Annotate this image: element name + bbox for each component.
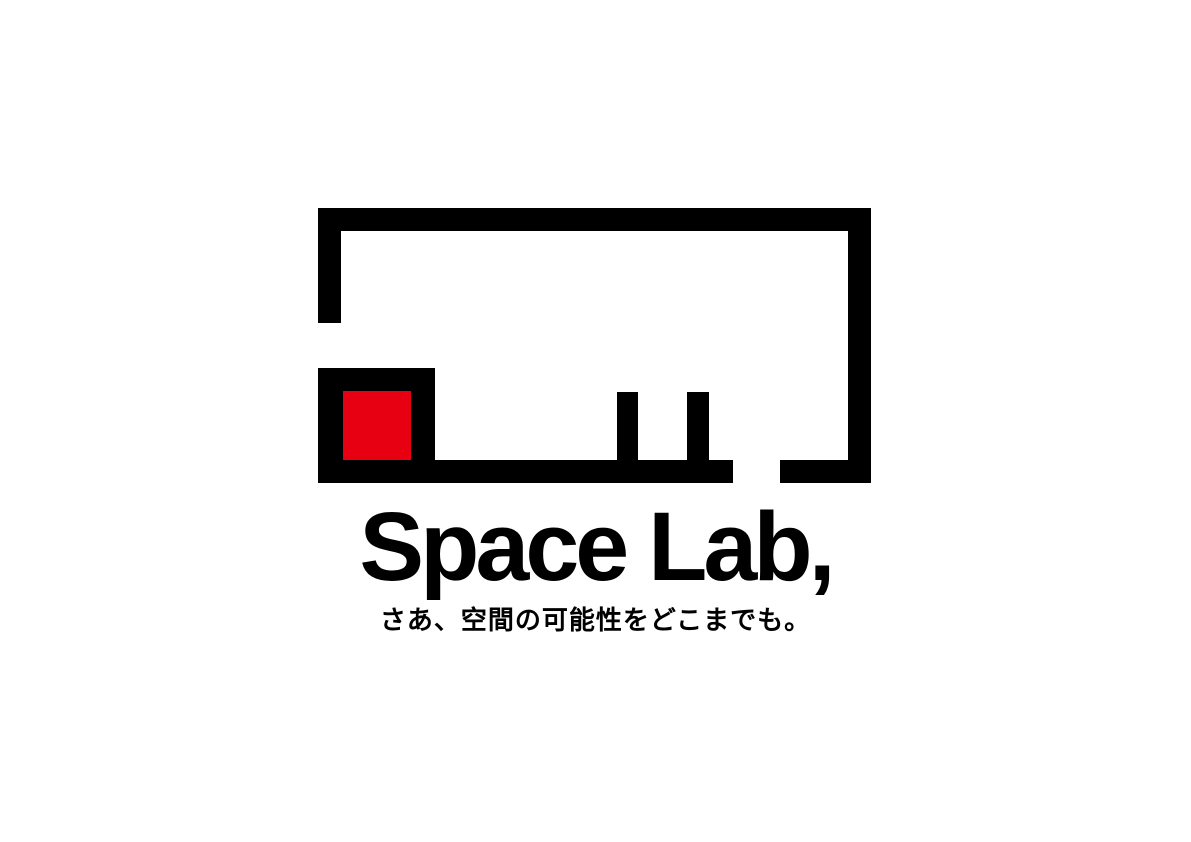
mark-bottom-wall-right-segment (780, 460, 871, 483)
logo-wordmark: Space Lab, (0, 499, 1191, 595)
logo-tagline: さあ、空間の可能性をどこまでも。 (0, 604, 1191, 636)
mark-top-wall (318, 208, 871, 231)
floorplan-room-mark-icon (318, 208, 871, 483)
logo-canvas: Space Lab, さあ、空間の可能性をどこまでも。 (0, 0, 1191, 842)
red-square-accent (343, 391, 411, 460)
mark-square-frame (318, 368, 435, 483)
mark-leg-bar-1 (617, 392, 638, 460)
mark-leg-bar-2 (687, 392, 709, 460)
mark-right-wall (848, 208, 871, 483)
mark-left-wall (318, 208, 341, 323)
